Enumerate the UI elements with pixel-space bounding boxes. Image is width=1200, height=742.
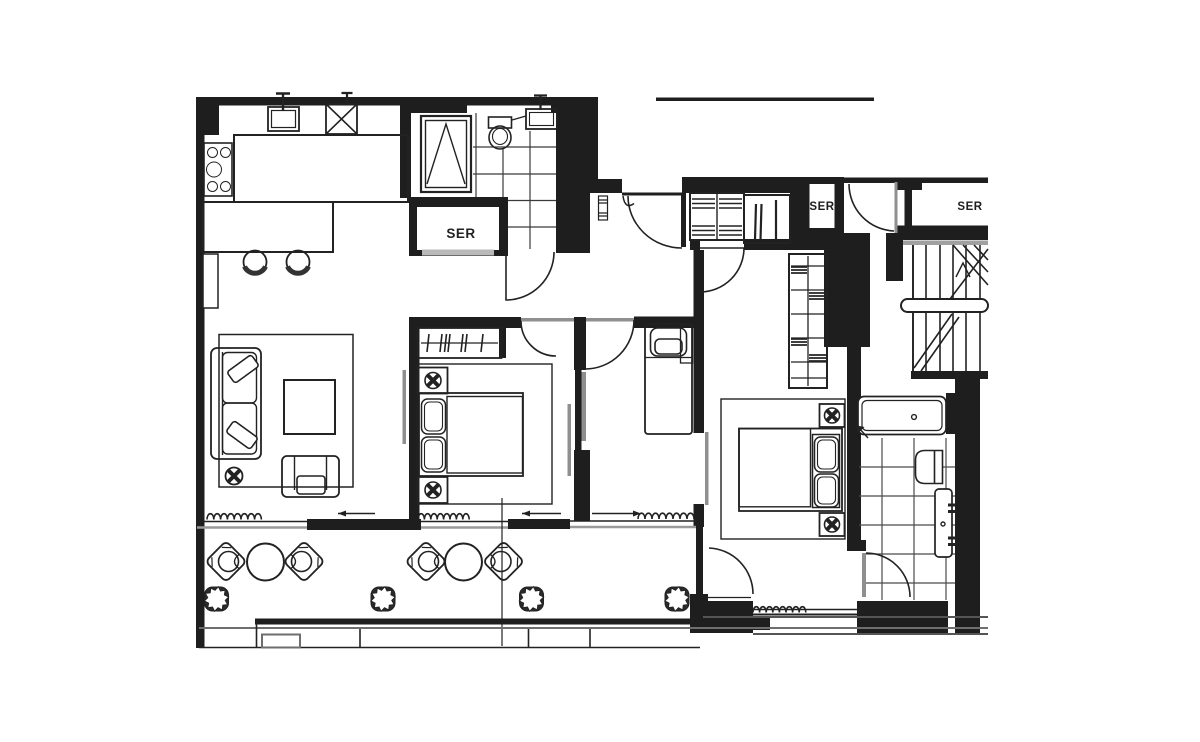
svg-text:SER: SER	[446, 226, 475, 241]
svg-text:SER: SER	[809, 201, 834, 213]
svg-text:SER: SER	[957, 201, 982, 213]
